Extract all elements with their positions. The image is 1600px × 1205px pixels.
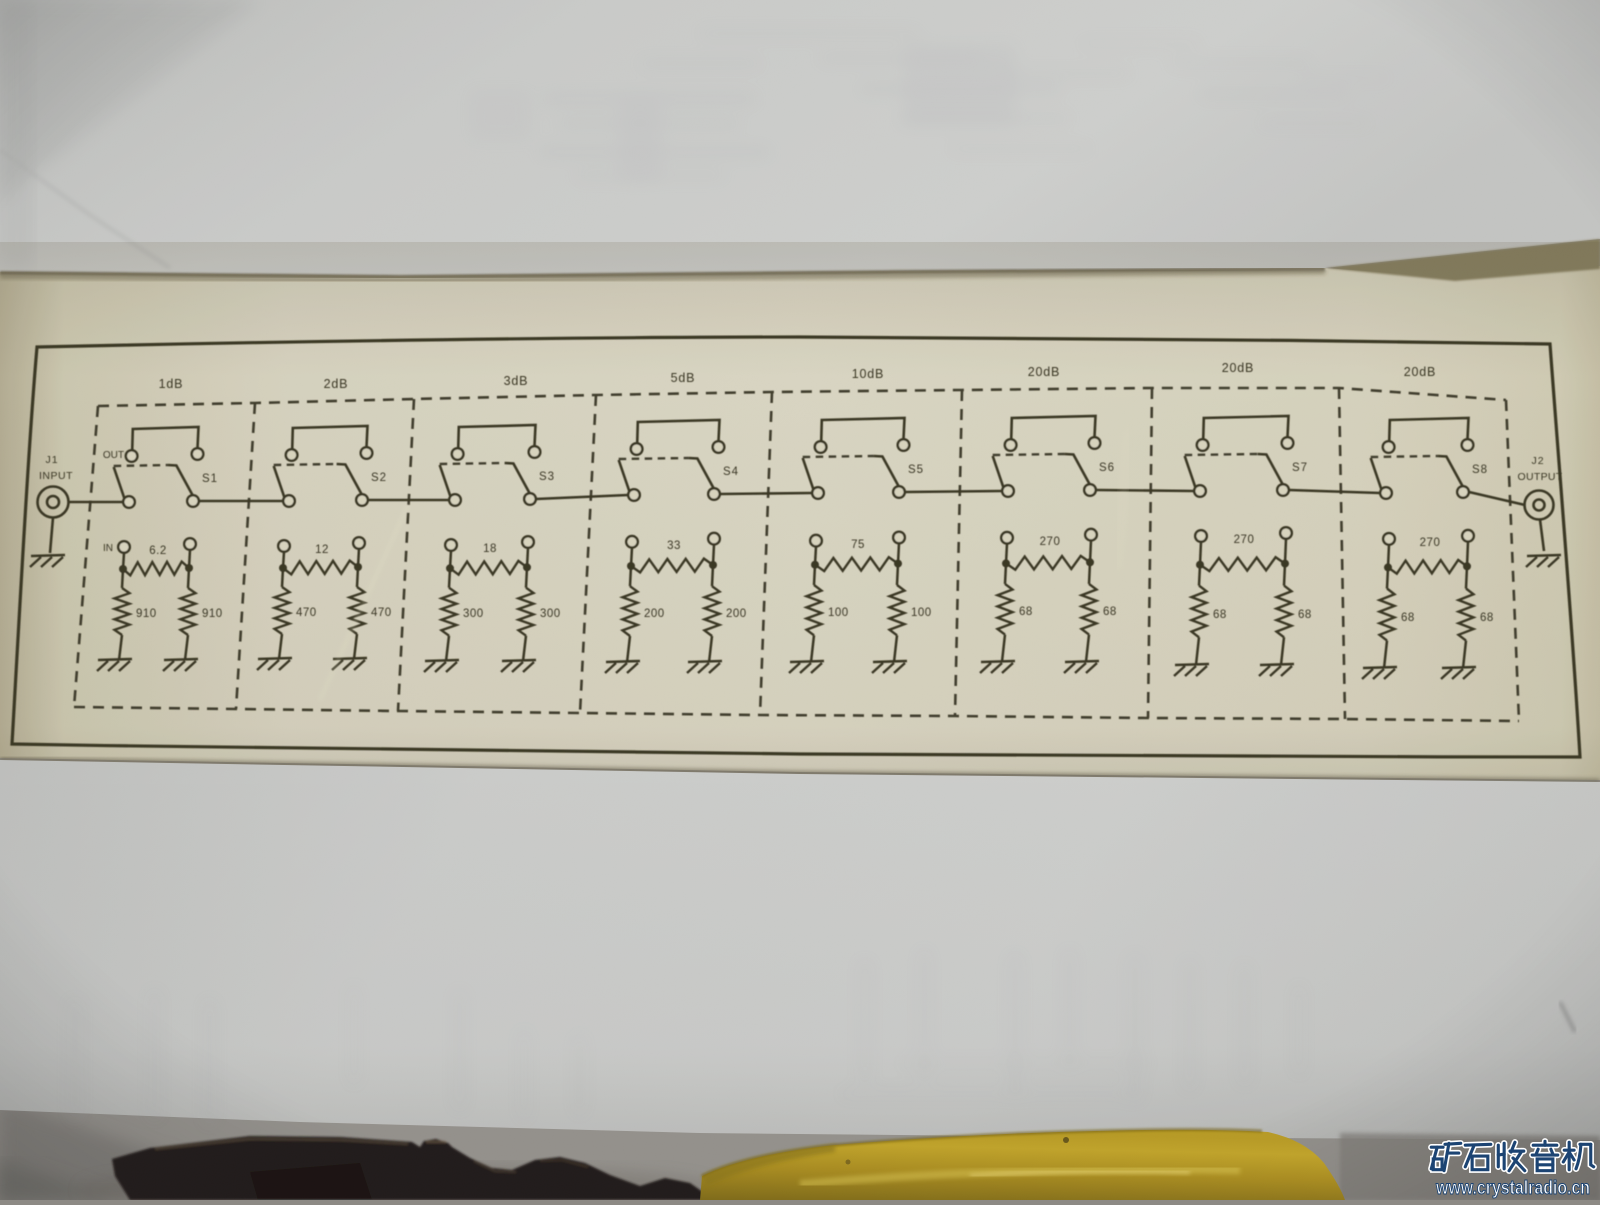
svg-text:www.crystalradio.cn: www.crystalradio.cn xyxy=(1435,1178,1590,1199)
